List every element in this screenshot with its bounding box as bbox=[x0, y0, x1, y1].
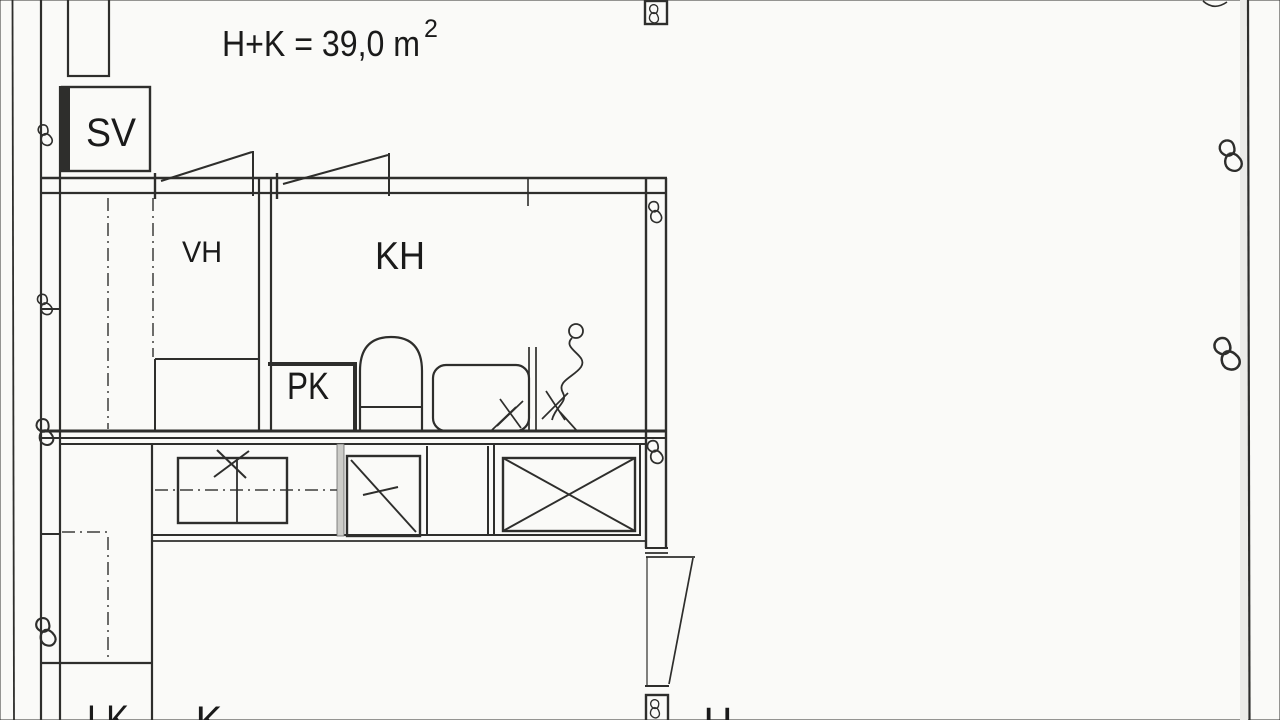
vh-kh-partition-wall bbox=[259, 178, 271, 431]
room-label-vh: VH bbox=[182, 236, 222, 269]
room-label-pk: PK bbox=[287, 366, 329, 408]
handwritten-mark bbox=[650, 700, 659, 718]
room-kh: KH PK bbox=[268, 235, 583, 432]
kitchen-top-wall bbox=[41, 431, 667, 438]
kitchen-sink-symbol bbox=[178, 450, 287, 523]
handwritten-mark bbox=[34, 616, 57, 648]
room-label-sv: SV bbox=[86, 111, 136, 155]
area-label: H+K = 39,0 m bbox=[222, 23, 420, 64]
handwritten-mark bbox=[1217, 138, 1244, 174]
floor-plan-drawing: SV H+K = 39,0 m 2 bbox=[0, 0, 1280, 720]
cutoff-mark-top-right bbox=[1203, 1, 1227, 6]
washbasin-icon bbox=[433, 365, 529, 431]
washing-machine-pk: PK bbox=[268, 364, 357, 431]
handwritten-mark bbox=[1211, 335, 1242, 373]
area-label-superscript: 2 bbox=[424, 15, 438, 43]
handwritten-mark bbox=[36, 293, 54, 317]
handwritten-mark bbox=[649, 5, 658, 23]
left-wall bbox=[34, 0, 70, 720]
top-left-cabinet bbox=[68, 0, 109, 76]
toilet-icon bbox=[360, 337, 422, 431]
handwritten-mark bbox=[646, 439, 664, 465]
handwritten-mark bbox=[648, 201, 663, 224]
handwritten-mark bbox=[37, 123, 54, 147]
top-wall bbox=[41, 151, 667, 206]
window-leaf bbox=[283, 155, 388, 184]
area-annotation: H+K = 39,0 m 2 bbox=[222, 15, 438, 64]
room-label-h: H bbox=[704, 700, 733, 720]
tap-cross bbox=[217, 450, 246, 478]
scanned-floor-plan: SV H+K = 39,0 m 2 bbox=[0, 0, 1280, 720]
kitchen-counter bbox=[60, 444, 645, 720]
window-leaf bbox=[161, 152, 252, 181]
room-label-k: K bbox=[196, 699, 223, 720]
fridge-symbol bbox=[503, 458, 635, 531]
room-vh: VH bbox=[108, 198, 259, 431]
dishwasher-symbol bbox=[347, 456, 420, 536]
door-leaf bbox=[669, 558, 693, 684]
room-sv: SV bbox=[62, 87, 150, 171]
counter-divider bbox=[337, 444, 344, 536]
room-label-lk: LK bbox=[87, 698, 129, 720]
floor-drain-icon bbox=[542, 391, 578, 432]
room-label-kh: KH bbox=[375, 235, 425, 278]
wall-poche bbox=[59, 87, 70, 172]
right-wall bbox=[645, 1, 695, 720]
floor-drain-icon bbox=[492, 399, 523, 430]
shower-hose-icon bbox=[552, 324, 583, 420]
cabinet-column-lk: LK bbox=[41, 532, 152, 720]
